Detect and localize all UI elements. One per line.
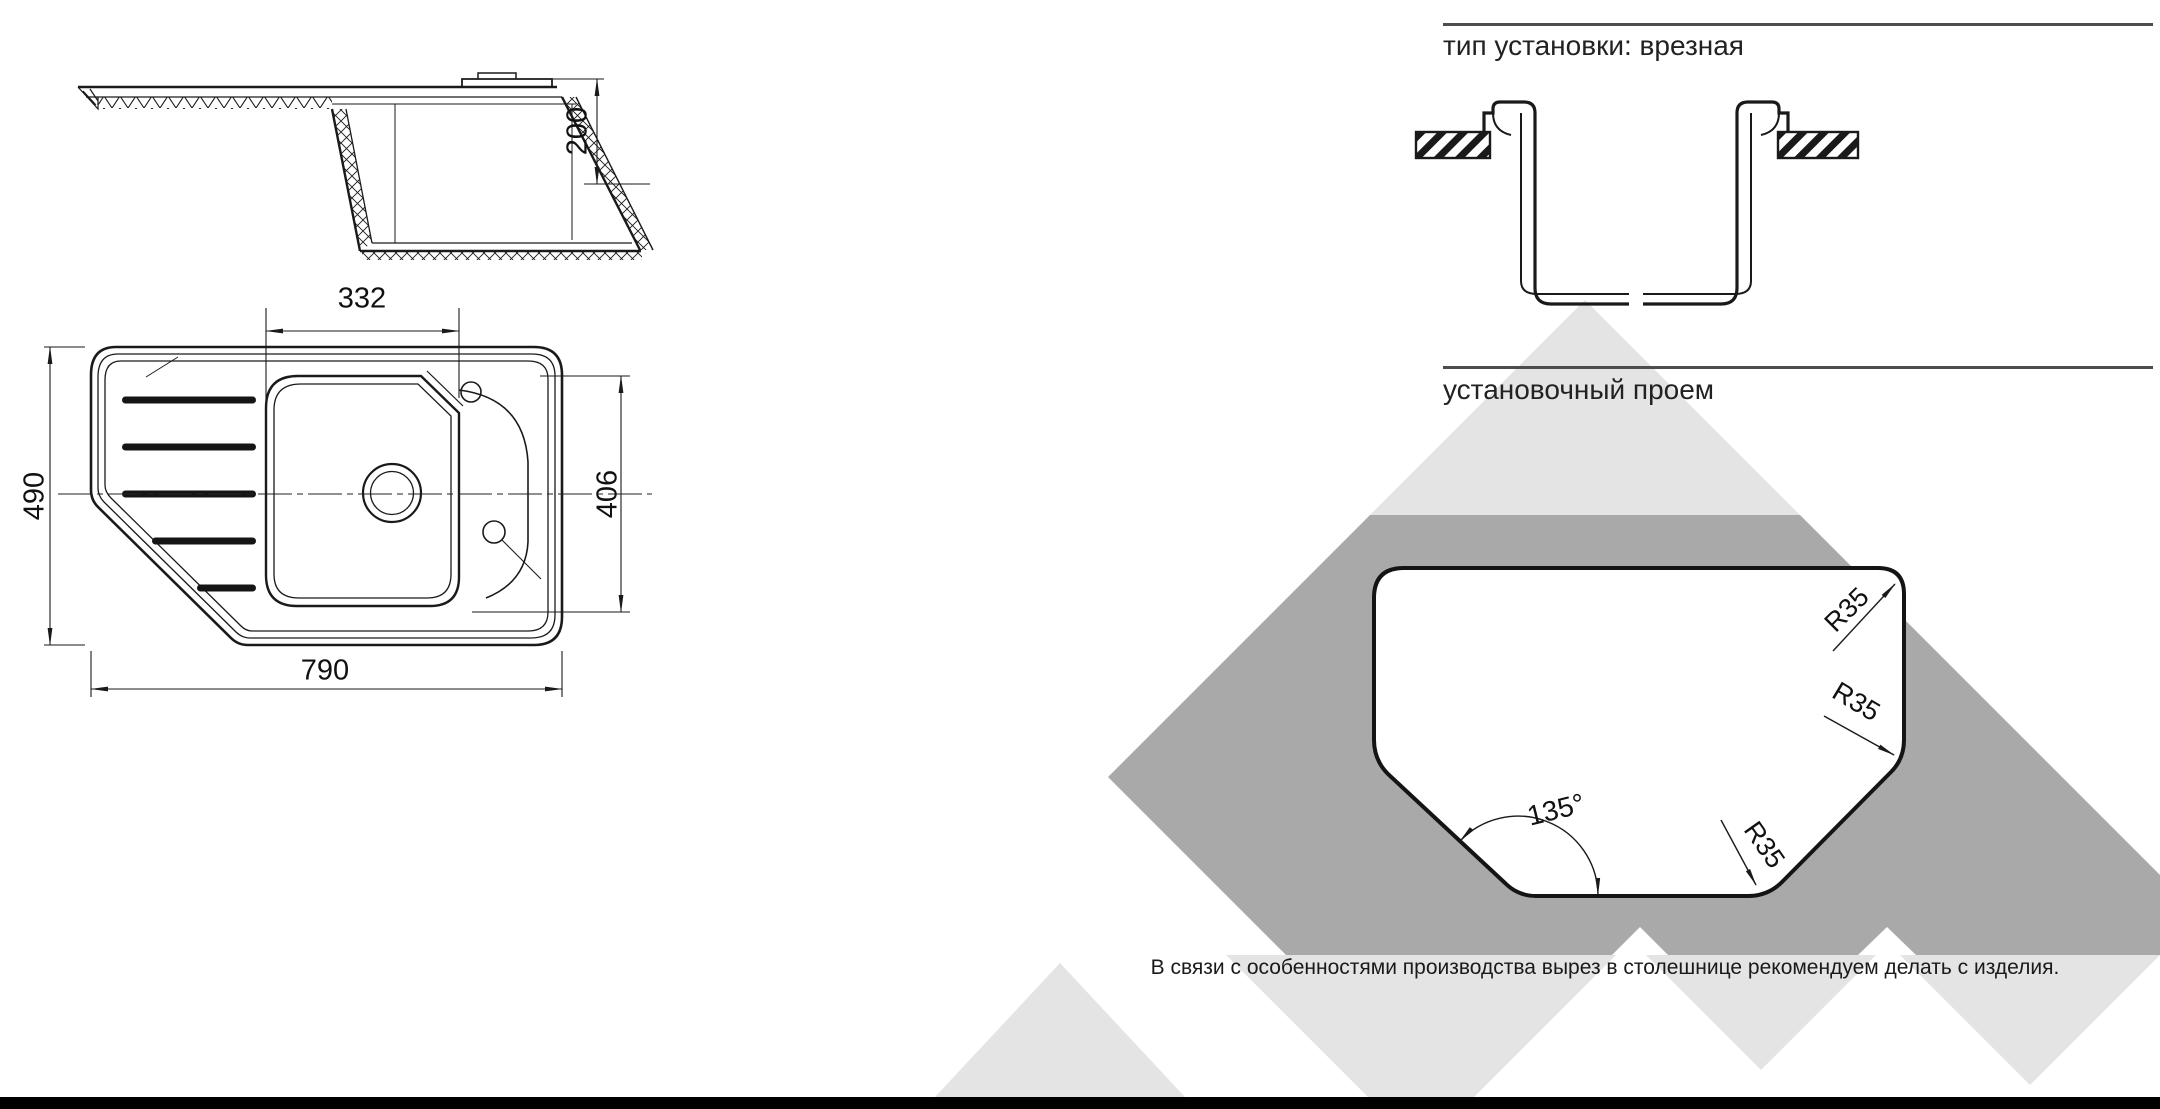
opening-title: установочный проем [1443,374,1714,406]
sink-installation-drawing: тип установки: врезная установочный прое… [0,0,2160,1109]
top-view-drawing [44,308,652,697]
small-drain-circle [483,521,505,543]
install-type-title: тип установки: врезная [1443,30,1744,62]
divider-install [1443,23,2153,26]
drain-circle-inner [371,472,414,515]
bottom-black-bar [0,1097,2160,1109]
drain-circle-outer [363,464,421,522]
dim-depth-200: 200 [562,107,595,155]
dim-bowl-width-332: 332 [338,283,386,316]
divider-opening [1443,366,2153,369]
side-view-drawing [78,73,653,260]
dim-bowl-length-406: 406 [592,470,625,518]
countertop-hatch-left [1416,132,1490,158]
technical-drawing-canvas [0,0,2160,1109]
production-note: В связи с особенностями производства выр… [1050,956,2160,980]
dim-overall-length-790: 790 [301,655,349,688]
dim-overall-width-490: 490 [19,472,52,520]
countertop-hatch-right [1778,132,1858,158]
section-view-drawing [1416,102,1858,304]
